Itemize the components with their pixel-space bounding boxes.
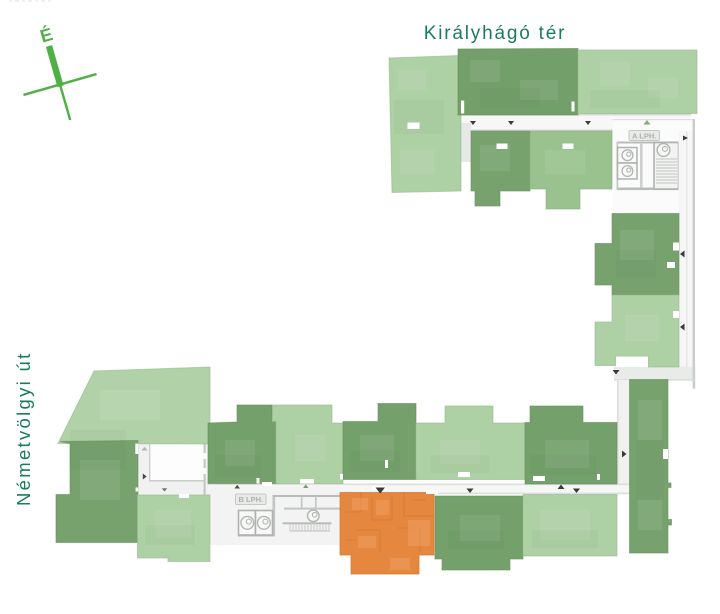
svg-text:Királyhágó tér: Királyhágó tér <box>424 23 566 44</box>
svg-text:A LPH.: A LPH. <box>632 131 656 140</box>
svg-text:B LPH.: B LPH. <box>239 495 264 504</box>
svg-text:Németvölgyi út: Németvölgyi út <box>13 351 34 506</box>
